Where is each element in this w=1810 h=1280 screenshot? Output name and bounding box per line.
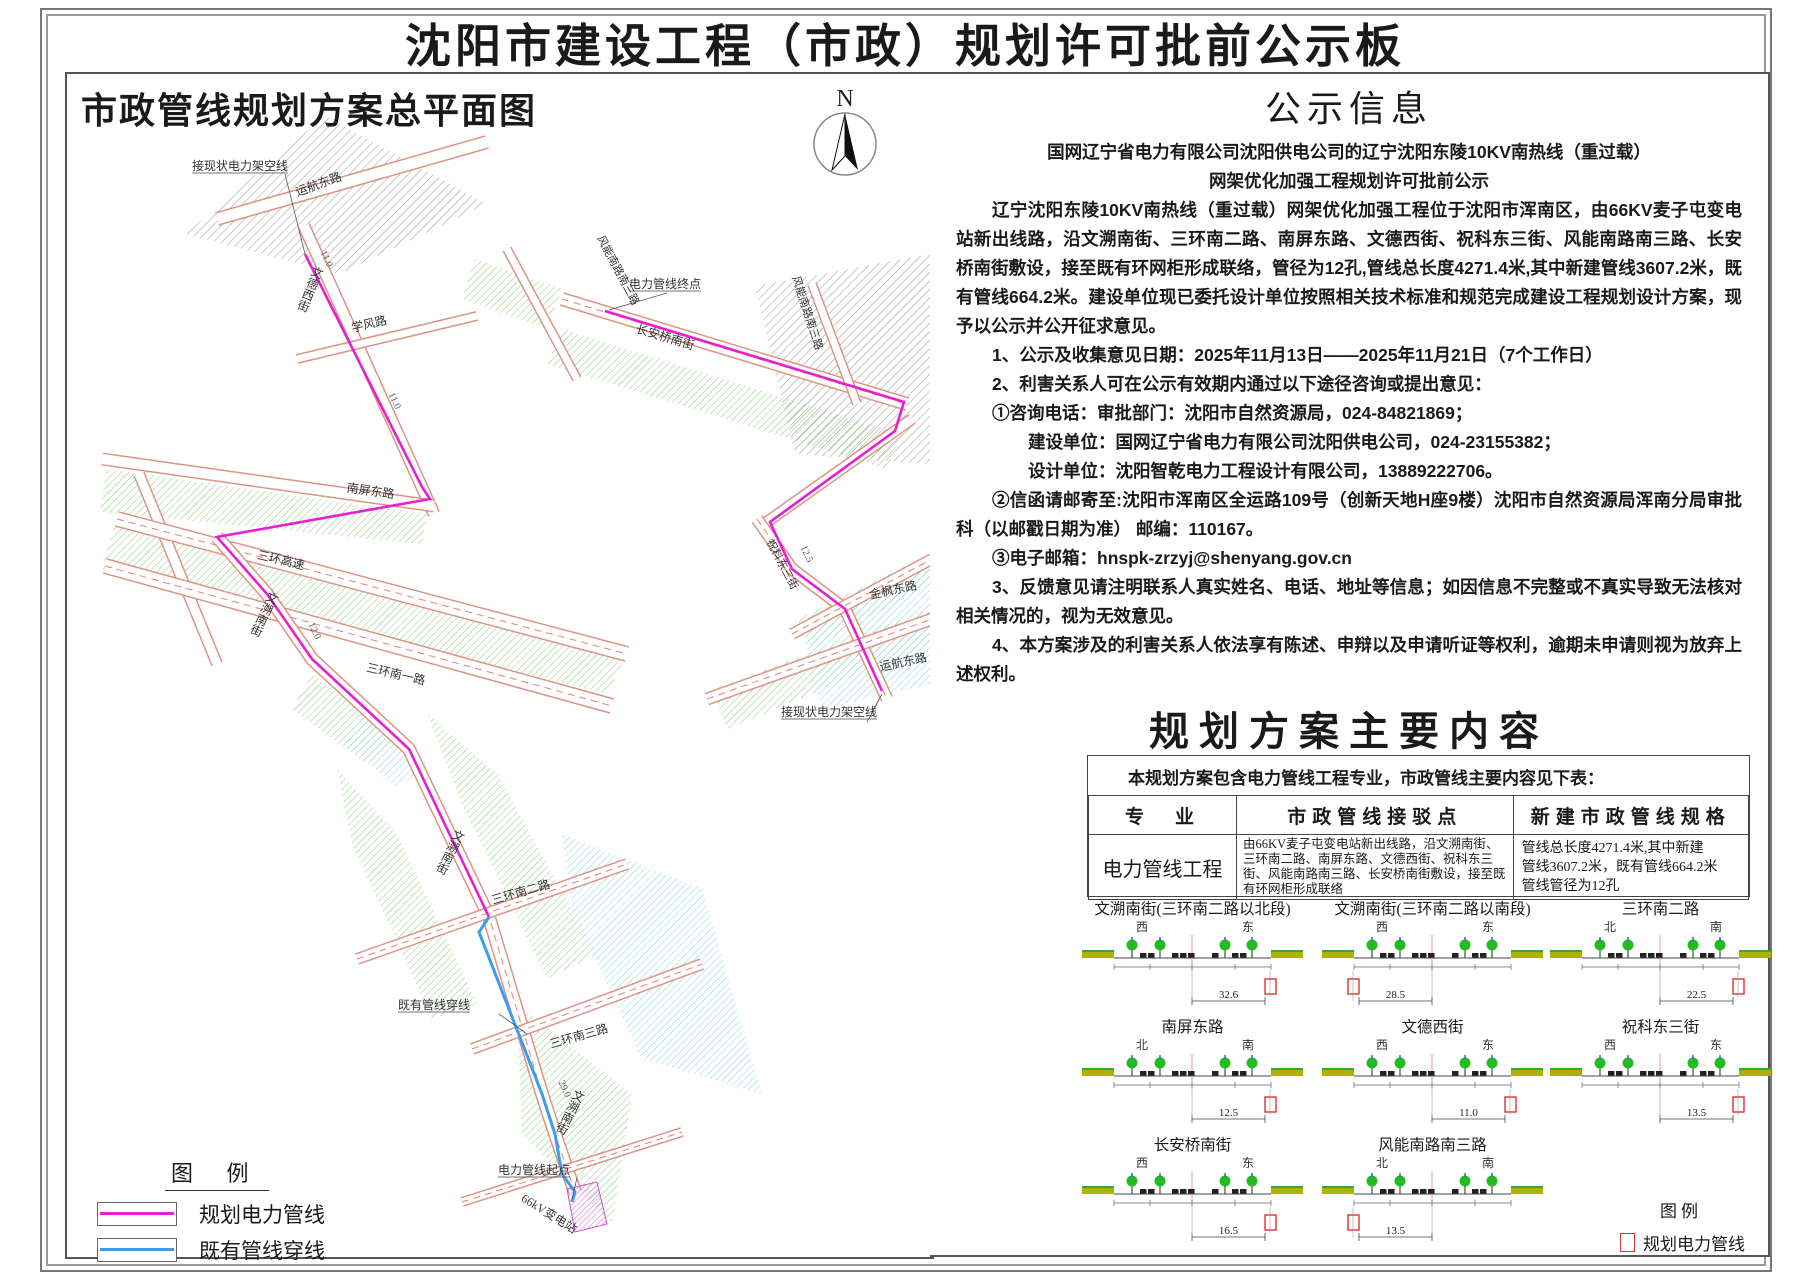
- notice-panel: 公示信息 国网辽宁省电力有限公司沈阳供电公司的辽宁沈阳东陵10KV南热线（重过载…: [930, 72, 1770, 699]
- cross-section-title: 祝科东三街: [1548, 1015, 1773, 1037]
- cross-section-cell: 祝科东三街西东13.5: [1548, 1015, 1773, 1133]
- notice-paragraph: 4、本方案涉及的利害关系人依法享有陈述、申辩以及申请听证等权利，逾期未申请则视为…: [956, 631, 1742, 689]
- col-header-spec: 新建市政管线规格: [1513, 796, 1748, 835]
- notice-body: 国网辽宁省电力有限公司沈阳供电公司的辽宁沈阳东陵10KV南热线（重过载）网架优化…: [930, 132, 1768, 689]
- plan-title: 规划方案主要内容: [930, 699, 1768, 757]
- plan-legend: 图例 规划电力管线: [1620, 1197, 1745, 1255]
- cell-spec: 管线总长度4271.4米,其中新建 管线3607.2米，既有管线664.2米 管…: [1513, 835, 1748, 900]
- map-hatch-area: [185, 116, 487, 274]
- svg-text:13.5: 13.5: [1386, 1225, 1406, 1237]
- svg-text:北: 北: [1376, 1156, 1388, 1170]
- notice-paragraph: 网架优化加强工程规划许可批前公示: [956, 167, 1742, 196]
- svg-text:西: 西: [1376, 920, 1388, 934]
- map-label: 既有管线穿线: [398, 997, 470, 1012]
- map-label: 接现状电力架空线: [781, 704, 877, 719]
- notice-paragraph: 3、反馈意见请注明联系人真实姓名、电话、地址等信息；如因信息不完整或不真实导致无…: [956, 573, 1742, 631]
- col-header-specialty: 专 业: [1089, 796, 1237, 835]
- notice-paragraph: ③电子邮箱：hnspk-zrzyj@shenyang.gov.cn: [956, 544, 1742, 573]
- map-label: 三环南三路: [548, 1020, 610, 1051]
- svg-text:北: 北: [1136, 1038, 1148, 1052]
- map-label: 电力管线起点: [498, 1162, 570, 1177]
- svg-text:28.5: 28.5: [1386, 989, 1406, 1001]
- notice-paragraph: ②信函请邮寄至:沈阳市浑南区全运路109号（创新天地H座9楼）沈阳市自然资源局浑…: [956, 486, 1742, 544]
- notice-paragraph: 辽宁沈阳东陵10KV南热线（重过载）网架优化加强工程位于沈阳市浑南区，由66KV…: [956, 196, 1742, 341]
- cross-sections-grid: 图例 规划电力管线 文溯南街(三环南二路以北段)西东32.6文溯南街(三环南二路…: [1080, 897, 1760, 1249]
- cross-section-title: 三环南二路: [1548, 897, 1773, 919]
- svg-text:11.0: 11.0: [1459, 1107, 1478, 1119]
- legend-label: 既有管线穿线: [199, 1235, 325, 1265]
- compass-needle: [845, 114, 858, 170]
- cross-section-cell: 文德西街西东11.0: [1320, 1015, 1545, 1133]
- notice-paragraph: 设计单位：沈阳智乾电力工程设计有限公司，13889222706。: [956, 457, 1742, 486]
- plan-panel: 规划方案主要内容 本规划方案包含电力管线工程专业，市政管线主要内容见下表： 专 …: [930, 695, 1770, 1257]
- plan-table-box: 本规划方案包含电力管线工程专业，市政管线主要内容见下表： 专 业 市政管线接驳点…: [1087, 755, 1750, 897]
- map-dimension: 12.5: [798, 544, 815, 565]
- notice-paragraph: ①咨询电话：审批部门：沈阳市自然资源局，024-84821869；: [956, 399, 1742, 428]
- page-title: 沈阳市建设工程（市政）规划许可批前公示板: [0, 10, 1810, 76]
- svg-text:东: 东: [1482, 920, 1494, 934]
- svg-text:22.5: 22.5: [1687, 989, 1707, 1001]
- notice-paragraph: 1、公示及收集意见日期：2025年11月13日——2025年11月21日（7个工…: [956, 341, 1742, 370]
- planned-power-line-marker: [1620, 1233, 1635, 1252]
- cross-section-cell: 文溯南街(三环南二路以北段)西东32.6: [1080, 897, 1305, 1015]
- map-label: 接现状电力架空线: [192, 158, 288, 173]
- cross-section-drawing: 西东11.0: [1320, 1037, 1545, 1133]
- cross-section-drawing: 西东28.5: [1320, 919, 1545, 1015]
- svg-text:东: 东: [1482, 1038, 1494, 1052]
- cross-section-title: 长安桥南街: [1080, 1133, 1305, 1155]
- map-legend-row: 规划电力管线: [97, 1201, 325, 1227]
- cross-section-title: 南屏东路: [1080, 1015, 1305, 1037]
- col-header-connection: 市政管线接驳点: [1236, 796, 1513, 835]
- cross-section-drawing: 北南12.5: [1080, 1037, 1305, 1133]
- notice-paragraph: 建设单位：国网辽宁省电力有限公司沈阳供电公司，024-23155382；: [956, 428, 1742, 457]
- map-label: 学风路: [350, 312, 388, 335]
- map-label: 风能南路南三路: [594, 233, 643, 308]
- cross-section-drawing: 北南22.5: [1548, 919, 1773, 1015]
- map-panel-title: 市政管线规划方案总平面图: [81, 82, 537, 134]
- cross-section-cell: 风能南路南三路北南13.5: [1320, 1133, 1545, 1251]
- cross-section-cell: 文溯南街(三环南二路以南段)西东28.5: [1320, 897, 1545, 1015]
- map-hatch-area: [337, 769, 477, 1019]
- svg-text:32.6: 32.6: [1219, 989, 1239, 1001]
- cross-section-title: 文溯南街(三环南二路以北段): [1080, 897, 1305, 919]
- svg-text:13.5: 13.5: [1687, 1107, 1707, 1119]
- compass-north-label: N: [836, 86, 853, 112]
- cell-specialty: 电力管线工程: [1089, 835, 1237, 900]
- svg-text:12.5: 12.5: [1219, 1107, 1239, 1119]
- legend-swatch: [97, 1238, 177, 1262]
- table-row: 电力管线工程 由66KV麦子屯变电站新出线路，沿文溯南街、三环南二路、南屏东路、…: [1089, 835, 1749, 900]
- cross-section-drawing: 西东16.5: [1080, 1155, 1305, 1251]
- svg-text:西: 西: [1604, 1038, 1616, 1052]
- legend-swatch: [97, 1202, 177, 1226]
- notice-board: { "title": "沈阳市建设工程（市政）规划许可批前公示板", "map_…: [0, 0, 1810, 1280]
- svg-text:东: 东: [1710, 1038, 1722, 1052]
- cross-section-cell: 南屏东路北南12.5: [1080, 1015, 1305, 1133]
- svg-text:东: 东: [1242, 920, 1254, 934]
- map-panel: 接现状电力架空线运航东路文德西街学风路南屏东路三环高速三环南一路文溯南街三环南二…: [65, 72, 934, 1259]
- notice-paragraph: 2、利害关系人可在公示有效期内通过以下途径咨询或提出意见：: [956, 370, 1742, 399]
- map-legend: 图 例 规划电力管线既有管线穿线: [97, 1156, 325, 1263]
- cross-section-drawing: 西东13.5: [1548, 1037, 1773, 1133]
- map-legend-title: 图 例: [165, 1156, 269, 1191]
- svg-text:16.5: 16.5: [1219, 1225, 1239, 1237]
- cross-section-drawing: 西东32.6: [1080, 919, 1305, 1015]
- cross-section-title: 文德西街: [1320, 1015, 1545, 1037]
- cell-connection: 由66KV麦子屯变电站新出线路，沿文溯南街、三环南二路、南屏东路、文德西街、祝科…: [1236, 835, 1513, 900]
- cross-section-cell: 长安桥南街西东16.5: [1080, 1133, 1305, 1251]
- svg-text:北: 北: [1604, 920, 1616, 934]
- map-label: 三环南一路: [365, 660, 427, 688]
- svg-text:南: 南: [1242, 1037, 1254, 1052]
- svg-text:东: 东: [1242, 1156, 1254, 1170]
- svg-text:西: 西: [1136, 920, 1148, 934]
- map-label: 电力管线终点: [629, 276, 701, 291]
- svg-text:西: 西: [1376, 1038, 1388, 1052]
- plan-map: 接现状电力架空线运航东路文德西街学风路南屏东路三环高速三环南一路文溯南街三环南二…: [67, 74, 932, 1257]
- svg-text:西: 西: [1136, 1156, 1148, 1170]
- plan-legend-title: 图例: [1660, 1197, 1745, 1222]
- map-hatch-area: [102, 524, 625, 694]
- plan-legend-item: 规划电力管线: [1643, 1230, 1745, 1255]
- plan-intro: 本规划方案包含电力管线工程专业，市政管线主要内容见下表：: [1128, 764, 1749, 789]
- cross-section-title: 风能南路南三路: [1320, 1133, 1545, 1155]
- cross-section-title: 文溯南街(三环南二路以南段): [1320, 897, 1545, 919]
- map-legend-row: 既有管线穿线: [97, 1237, 325, 1263]
- legend-label: 规划电力管线: [199, 1199, 325, 1229]
- plan-table: 专 业 市政管线接驳点 新建市政管线规格 电力管线工程 由66KV麦子屯变电站新…: [1088, 795, 1749, 900]
- svg-text:南: 南: [1482, 1155, 1494, 1170]
- notice-title: 公示信息: [930, 80, 1768, 132]
- svg-text:南: 南: [1710, 919, 1722, 934]
- cross-section-drawing: 北南13.5: [1320, 1155, 1545, 1251]
- cross-section-cell: 三环南二路北南22.5: [1548, 897, 1773, 1015]
- notice-paragraph: 国网辽宁省电力有限公司沈阳供电公司的辽宁沈阳东陵10KV南热线（重过载）: [956, 138, 1742, 167]
